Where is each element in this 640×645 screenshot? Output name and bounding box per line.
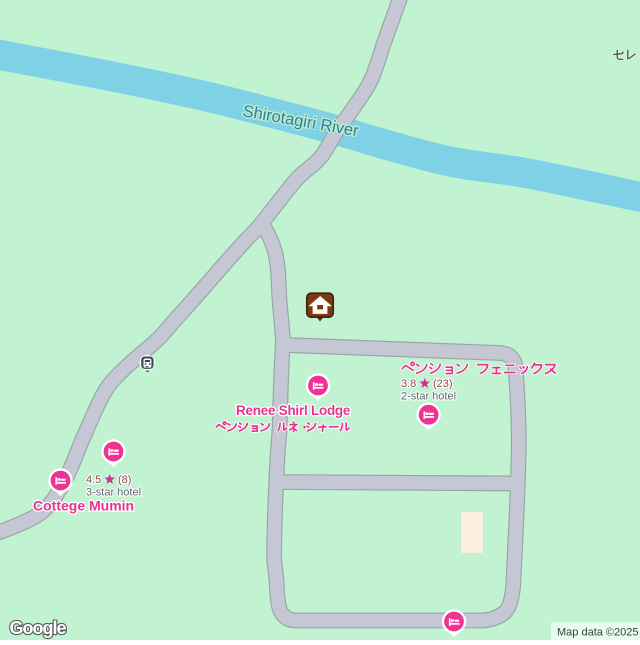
svg-text:Cottege Mumin: Cottege Mumin [33,498,134,514]
svg-text:(8): (8) [118,474,131,486]
svg-text:4.5: 4.5 [86,474,101,486]
svg-text:2-star hotel: 2-star hotel [401,391,456,403]
svg-text:(23): (23) [433,378,453,390]
svg-text:3.8: 3.8 [401,378,416,390]
svg-text:Google: Google [10,618,67,638]
svg-text:Map data ©2025: Map data ©2025 [557,627,639,639]
svg-text:Renee Shirl Lodge: Renee Shirl Lodge [236,403,350,418]
